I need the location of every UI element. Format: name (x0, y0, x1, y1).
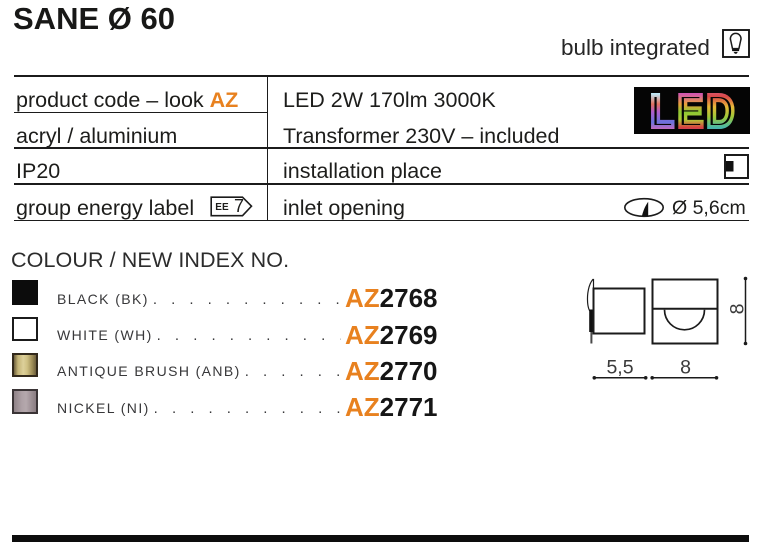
svg-text:7: 7 (234, 196, 244, 216)
svg-text:8: 8 (727, 304, 749, 315)
svg-text:E: E (677, 87, 703, 134)
svg-text:8: 8 (680, 357, 691, 379)
svg-text:EE: EE (215, 202, 229, 213)
svg-text:5,5: 5,5 (606, 357, 633, 379)
svg-text:D: D (706, 87, 734, 134)
svg-text:L: L (650, 87, 674, 134)
